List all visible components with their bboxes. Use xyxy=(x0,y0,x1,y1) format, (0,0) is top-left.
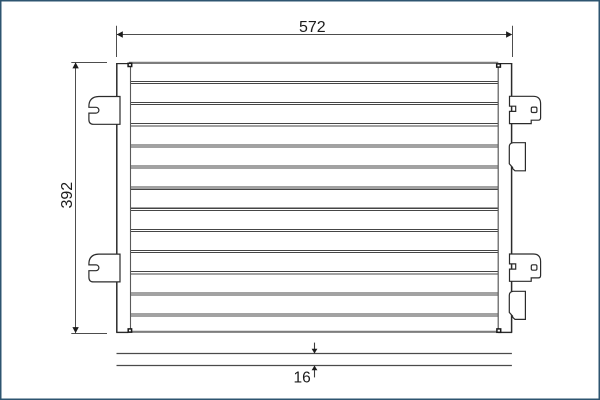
svg-text:16: 16 xyxy=(294,369,311,386)
svg-text:572: 572 xyxy=(299,19,326,36)
svg-text:392: 392 xyxy=(59,182,76,209)
